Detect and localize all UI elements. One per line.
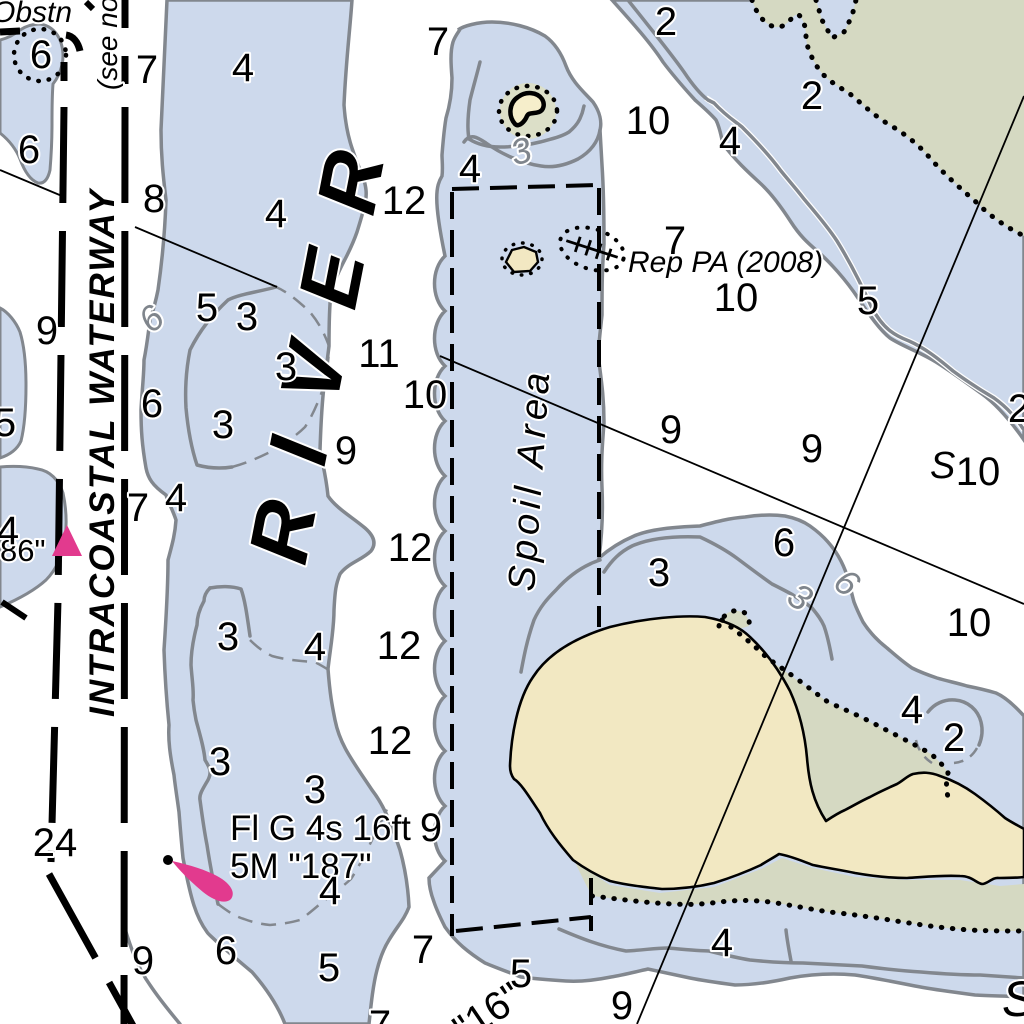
svg-text:4: 4: [711, 921, 733, 965]
svg-text:9: 9: [420, 806, 442, 850]
svg-text:7: 7: [127, 486, 149, 530]
svg-text:6: 6: [141, 382, 163, 426]
svg-text:6: 6: [773, 521, 795, 565]
svg-text:3: 3: [648, 551, 670, 595]
svg-text:Fl G 4s 16ft: Fl G 4s 16ft: [230, 809, 411, 848]
svg-text:9: 9: [611, 984, 633, 1024]
svg-text:5: 5: [510, 952, 532, 996]
svg-text:12: 12: [388, 526, 433, 570]
svg-text:3: 3: [212, 403, 234, 447]
svg-text:11: 11: [358, 332, 400, 376]
svg-text:9: 9: [36, 309, 58, 353]
svg-text:12: 12: [368, 719, 413, 763]
svg-text:3: 3: [275, 345, 297, 389]
svg-text:7: 7: [369, 1003, 391, 1024]
svg-text:3: 3: [217, 615, 239, 659]
svg-text:10: 10: [956, 450, 1001, 494]
svg-text:3: 3: [236, 295, 258, 339]
svg-text:4: 4: [165, 476, 187, 520]
svg-text:10: 10: [714, 276, 759, 320]
svg-text:6: 6: [30, 33, 52, 77]
svg-text:10: 10: [403, 373, 448, 417]
svg-text:Rep PA (2008): Rep PA (2008): [628, 246, 823, 279]
svg-text:5M "187": 5M "187": [230, 847, 372, 886]
svg-text:7: 7: [412, 928, 434, 972]
svg-text:5: 5: [318, 946, 340, 990]
svg-text:4: 4: [0, 509, 19, 553]
svg-text:12: 12: [377, 624, 422, 668]
svg-text:7: 7: [136, 48, 158, 92]
svg-text:INTRACOASTAL WATERWAY: INTRACOASTAL WATERWAY: [83, 187, 122, 717]
svg-text:9: 9: [660, 408, 682, 452]
svg-text:2: 2: [1008, 387, 1024, 431]
svg-text:2: 2: [801, 74, 823, 118]
svg-text:4: 4: [319, 869, 341, 913]
svg-text:10: 10: [947, 601, 992, 645]
svg-text:9: 9: [801, 427, 823, 471]
svg-text:3: 3: [304, 768, 326, 812]
svg-text:S: S: [1002, 971, 1024, 1024]
svg-text:7: 7: [664, 219, 686, 263]
svg-text:4: 4: [459, 147, 481, 191]
svg-text:2: 2: [655, 0, 677, 44]
svg-text:10: 10: [626, 99, 671, 143]
svg-text:3: 3: [209, 740, 231, 784]
svg-text:5: 5: [196, 286, 218, 330]
svg-text:4: 4: [719, 119, 741, 163]
svg-text:4: 4: [304, 625, 326, 669]
svg-text:4: 4: [232, 46, 254, 90]
svg-text:8: 8: [143, 177, 165, 221]
svg-text:5: 5: [857, 279, 879, 323]
svg-text:S: S: [930, 445, 955, 487]
svg-text:2: 2: [943, 716, 965, 760]
svg-text:(see not: (see not: [92, 0, 123, 90]
svg-text:24: 24: [33, 821, 78, 865]
svg-text:4: 4: [265, 192, 287, 236]
svg-text:12: 12: [382, 179, 427, 223]
svg-text:9: 9: [132, 939, 154, 983]
svg-text:7: 7: [427, 20, 449, 64]
svg-text:6: 6: [18, 128, 40, 172]
svg-text:Obstn: Obstn: [0, 0, 72, 29]
svg-text:6: 6: [215, 929, 237, 973]
svg-text:5: 5: [0, 401, 16, 445]
svg-text:4: 4: [901, 688, 923, 732]
svg-text:9: 9: [335, 429, 357, 473]
